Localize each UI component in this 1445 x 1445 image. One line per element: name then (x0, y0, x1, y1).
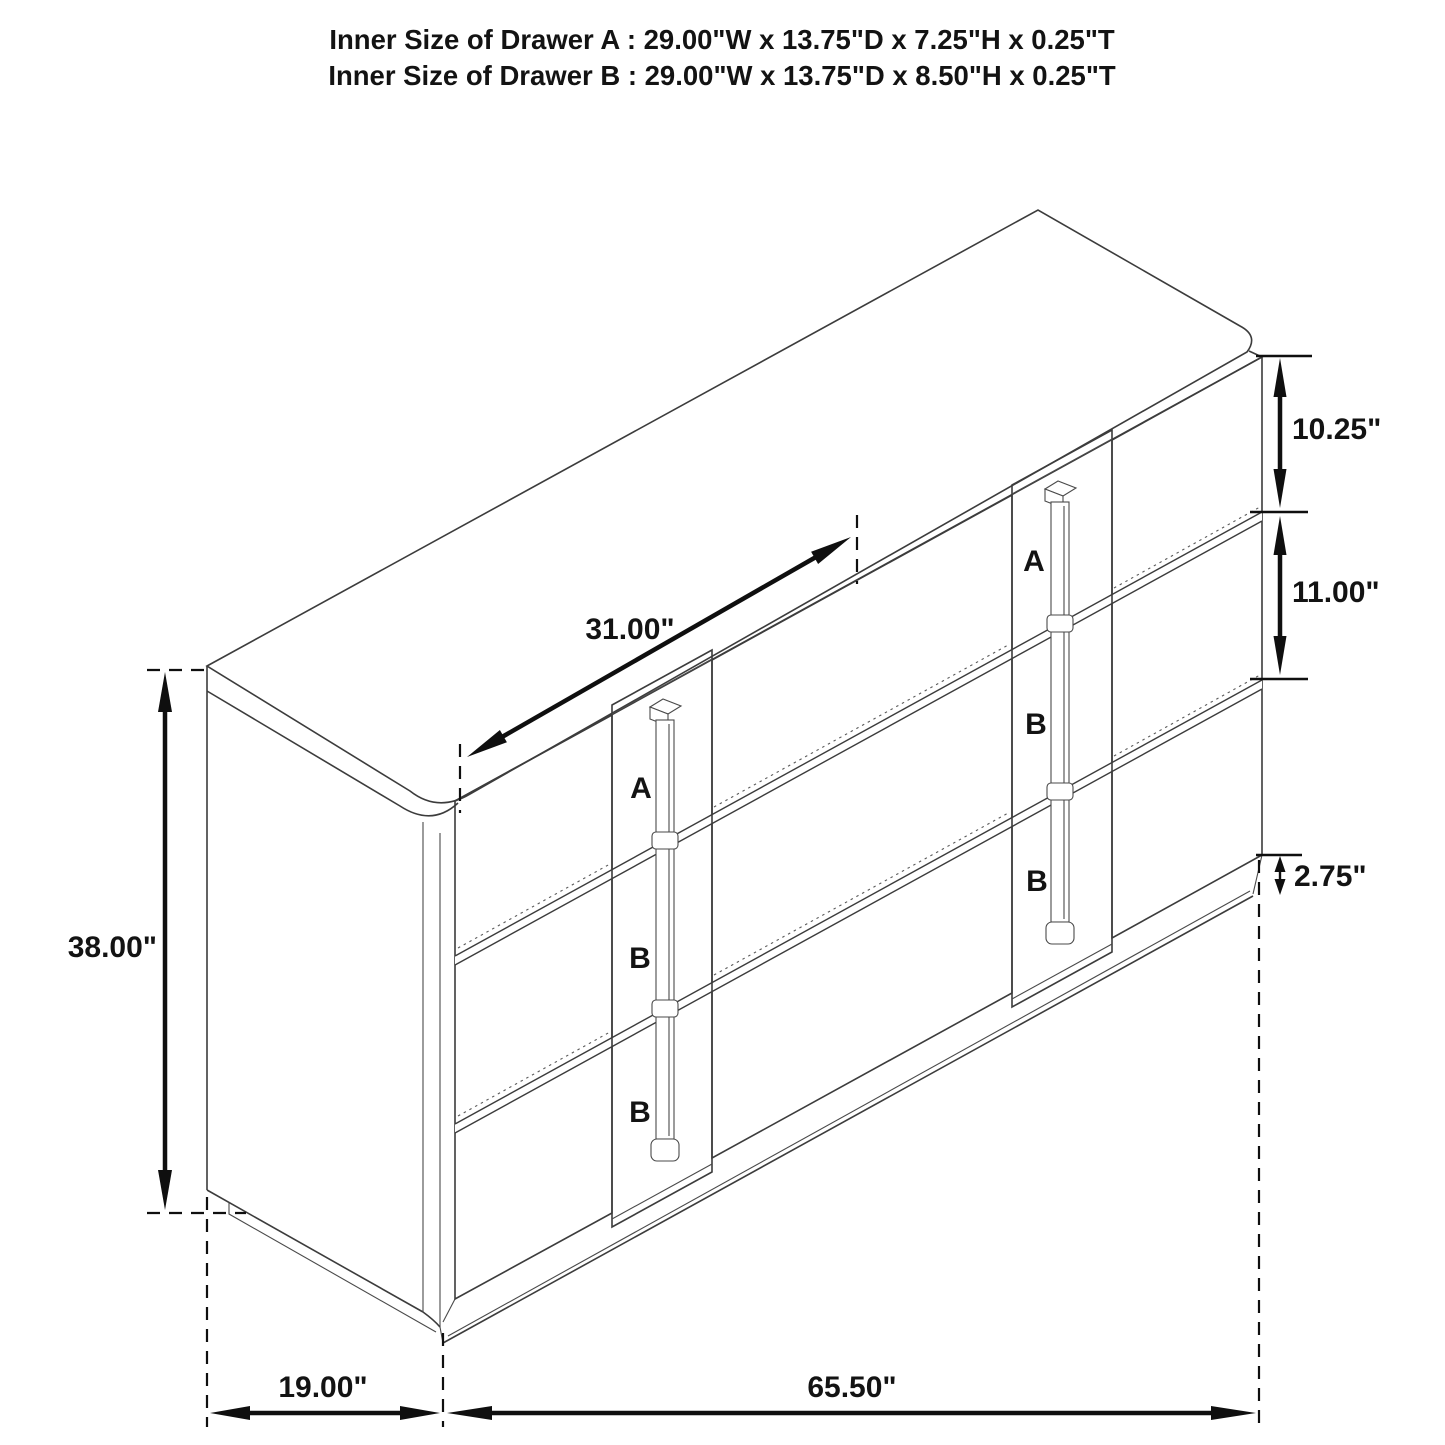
drawer-handle-left (650, 699, 681, 1161)
label-base-height: 2.75" (1294, 860, 1367, 893)
label-top-drawer-height: 10.25" (1292, 413, 1381, 446)
drawer-letter-left-b2: B (629, 1096, 651, 1129)
label-overall-depth: 19.00" (278, 1371, 367, 1404)
dim-overall-width (447, 1406, 1256, 1420)
left-plinth-reveal (229, 1202, 443, 1343)
drawer-letter-right-b1: B (1025, 708, 1047, 741)
fluted-column-left (455, 715, 612, 1299)
dresser-dimension-diagram: A B B A B B (0, 0, 1445, 1445)
drawer-handle-right (1045, 481, 1076, 944)
drawer-letter-left-b1: B (629, 942, 651, 975)
left-corner-bottom-curve (423, 1312, 440, 1327)
drawer-letter-right-b2: B (1026, 865, 1048, 898)
title-line-2: Inner Size of Drawer B : 29.00"W x 13.75… (328, 60, 1116, 91)
dim-top-drawer-height (1274, 358, 1287, 508)
dim-base-height (1275, 856, 1286, 895)
dim-middle-drawer-height (1274, 516, 1287, 675)
label-overall-width: 65.50" (807, 1371, 896, 1404)
left-corner-edges (423, 822, 440, 1327)
drawer-gap-lines (455, 512, 1262, 1133)
diagram-text: Inner Size of Drawer A : 29.00"W x 13.75… (68, 24, 1382, 1404)
label-middle-drawer-height: 11.00" (1292, 576, 1380, 609)
plinth-detail-line (448, 891, 1250, 1336)
fluted-column-right (1112, 357, 1262, 938)
plinth-right-inset (1253, 855, 1262, 894)
plinth-bottom-edge (443, 896, 1253, 1343)
drawer-letter-right-a: A (1023, 545, 1045, 578)
diagram-canvas: A B B A B B (0, 0, 1445, 1445)
title-line-1: Inner Size of Drawer A : 29.00"W x 13.75… (329, 24, 1115, 55)
left-panel-bottom-edge (207, 1190, 423, 1312)
label-drawer-width: 31.00" (585, 613, 674, 646)
drawer-letter-left-a: A (630, 772, 652, 805)
label-overall-height: 38.00" (68, 931, 157, 964)
plinth-left-end (443, 1299, 455, 1322)
dim-overall-height (147, 670, 246, 1213)
top-surface (207, 210, 1252, 803)
fluted-column-middle (712, 495, 1012, 1158)
drawer-gap-2 (455, 680, 1262, 1133)
dresser-drawing: A B B A B B (207, 210, 1262, 1343)
dim-overall-depth (210, 1406, 440, 1420)
